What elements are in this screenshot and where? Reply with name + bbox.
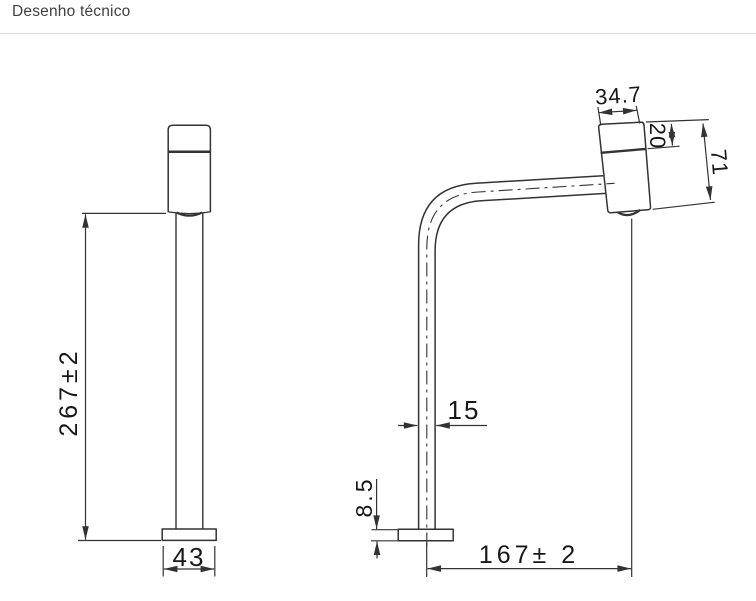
extension-line	[646, 120, 709, 122]
extension-line	[636, 106, 640, 124]
dim-base-thickness-label: 8.5	[351, 477, 377, 518]
extension-line	[653, 202, 715, 209]
dim-height-label: 267±2	[55, 347, 83, 436]
dim-height: 267±2	[55, 213, 166, 540]
side-base-plate	[398, 529, 453, 540]
front-head-bottom	[168, 212, 210, 214]
spout-tube-outer	[419, 176, 604, 530]
technical-drawing: 267±2 43 34.7	[0, 0, 756, 601]
dim-head-width-label: 34.7	[594, 81, 642, 109]
extension-line	[598, 107, 601, 126]
dim-reach-label: 167± 2	[479, 541, 579, 569]
dim-base-width-label: 43	[173, 542, 206, 572]
dimension-line	[671, 124, 672, 146]
front-view: 267±2 43	[55, 125, 216, 576]
front-head-outline	[168, 125, 210, 212]
dim-head-height-label: 71	[706, 148, 733, 177]
dim-head-width: 34.7	[594, 81, 642, 125]
front-base-plate	[162, 529, 216, 540]
spout-tube-inner	[435, 193, 605, 529]
dim-base-width: 43	[163, 542, 215, 577]
page: Desenho técnico 267±2	[0, 0, 756, 601]
dim-tube-width-label: 15	[448, 395, 481, 425]
dim-cap-height-label: 20	[645, 123, 670, 149]
tube-centerline	[427, 183, 615, 546]
side-head-outline	[599, 122, 651, 213]
dimension-line	[599, 110, 637, 112]
dim-base-thickness: 8.5	[351, 477, 398, 559]
side-cap-line	[601, 149, 647, 153]
side-view: 34.7 20 71 15	[351, 81, 733, 577]
dim-tube-width: 15	[398, 395, 487, 426]
dim-cap-height: 20	[645, 120, 709, 150]
